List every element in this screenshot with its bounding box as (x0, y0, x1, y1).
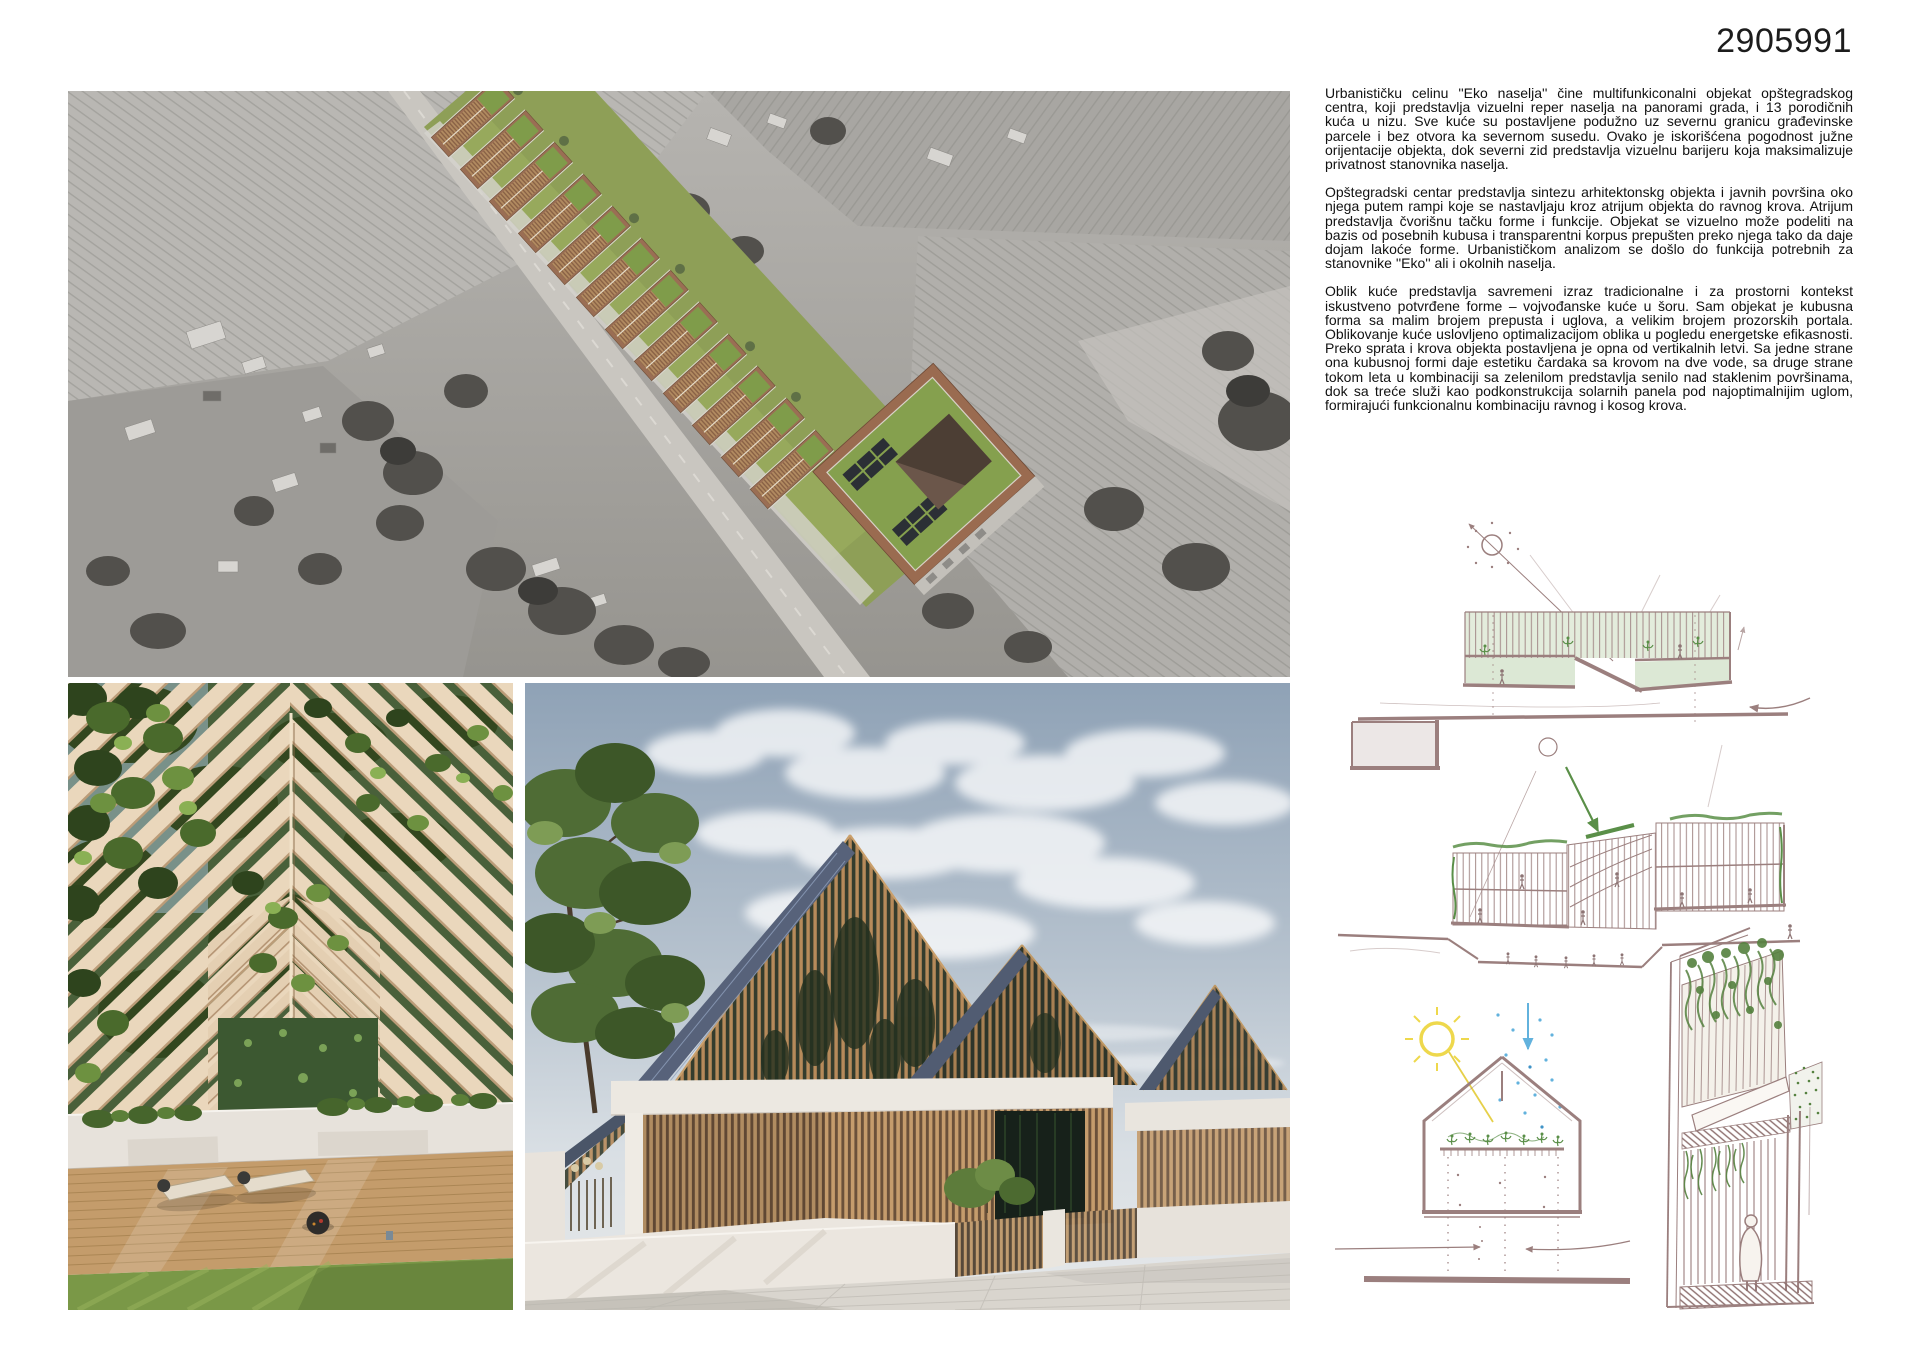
description-paragraph-urban-unit: Urbanističku celinu ''Eko naselja'' čine… (1325, 86, 1853, 171)
exterior-render-graphic (525, 683, 1290, 1310)
entry-number: 2905991 (1560, 22, 1852, 61)
mug (386, 1231, 393, 1240)
sketch-house-diagram (1335, 1003, 1630, 1281)
sun-icon (1405, 1007, 1493, 1122)
ground-with-plaza (1338, 924, 1800, 968)
sun-icon (1539, 738, 1557, 756)
sunken-court (1350, 720, 1440, 770)
project-description: Urbanističku celinu ''Eko naselja'' čine… (1325, 86, 1853, 412)
sketches-graphic (1330, 515, 1875, 1335)
interior-render-graphic (68, 683, 513, 1310)
description-paragraph-center: Opštegradski centar predstavlja sintezu … (1325, 185, 1853, 270)
concept-sketches (1330, 515, 1875, 1335)
description-paragraph-house-form: Oblik kuće predstavlja savremeni izraz t… (1325, 284, 1853, 412)
aerial-site-render (68, 91, 1290, 677)
airflow-arrow-right-icon (1526, 1241, 1630, 1250)
upper-slat-panel (1682, 938, 1786, 1107)
sketch-facade-perspective (1667, 928, 1822, 1309)
interior-courtyard-render (68, 683, 513, 1310)
roof-garden-plants (1447, 1132, 1563, 1147)
section-building (1463, 612, 1744, 725)
rain-icon (1496, 1003, 1561, 1129)
ramp (1575, 658, 1642, 691)
hanging-vines (1684, 1143, 1744, 1199)
person-figure (1740, 1215, 1762, 1291)
street-view-render (525, 683, 1290, 1310)
airflow-arrow-left-icon (1335, 1247, 1480, 1249)
corner-post (625, 1113, 643, 1248)
ground-bar (1364, 1279, 1630, 1281)
sun-arrow-icon (1566, 767, 1598, 831)
competition-board: 2905991 (0, 0, 1920, 1357)
aerial-photo-graphic (68, 91, 1290, 677)
wood-deck (68, 1151, 513, 1275)
speckled-panel (1789, 1062, 1822, 1129)
wind-arrow-icon (1750, 698, 1810, 708)
sketch-section-center (1338, 738, 1800, 968)
house-section (1422, 1057, 1582, 1273)
sketch-section-house-row (1350, 522, 1810, 770)
ground-line (1358, 714, 1788, 719)
